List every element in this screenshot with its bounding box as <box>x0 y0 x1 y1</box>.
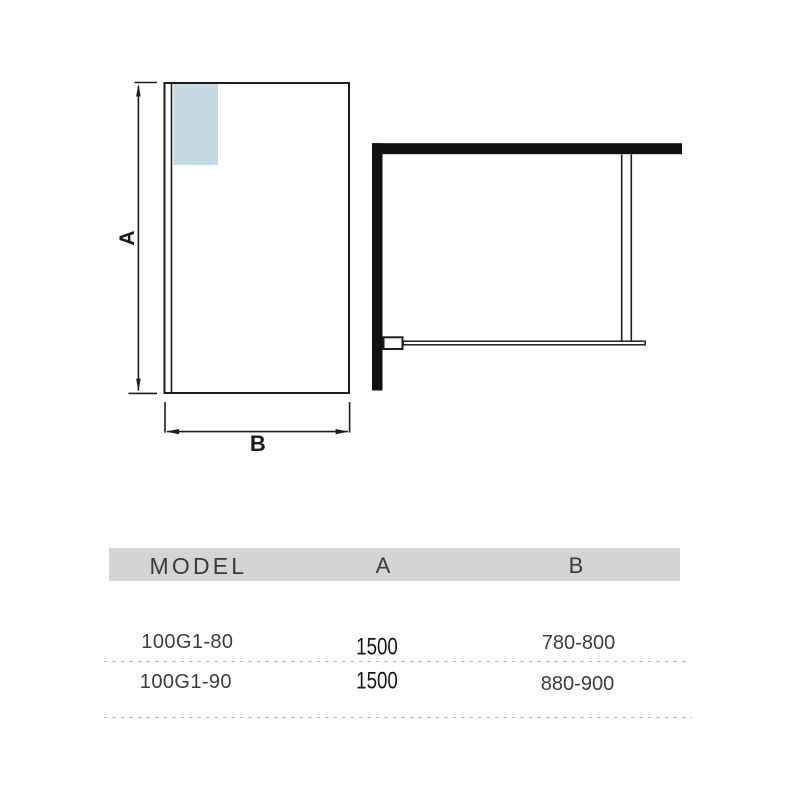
svg-text:1500: 1500 <box>356 667 398 694</box>
svg-text:B: B <box>250 431 266 456</box>
svg-text:1500: 1500 <box>356 633 398 660</box>
svg-text:A: A <box>116 230 139 245</box>
